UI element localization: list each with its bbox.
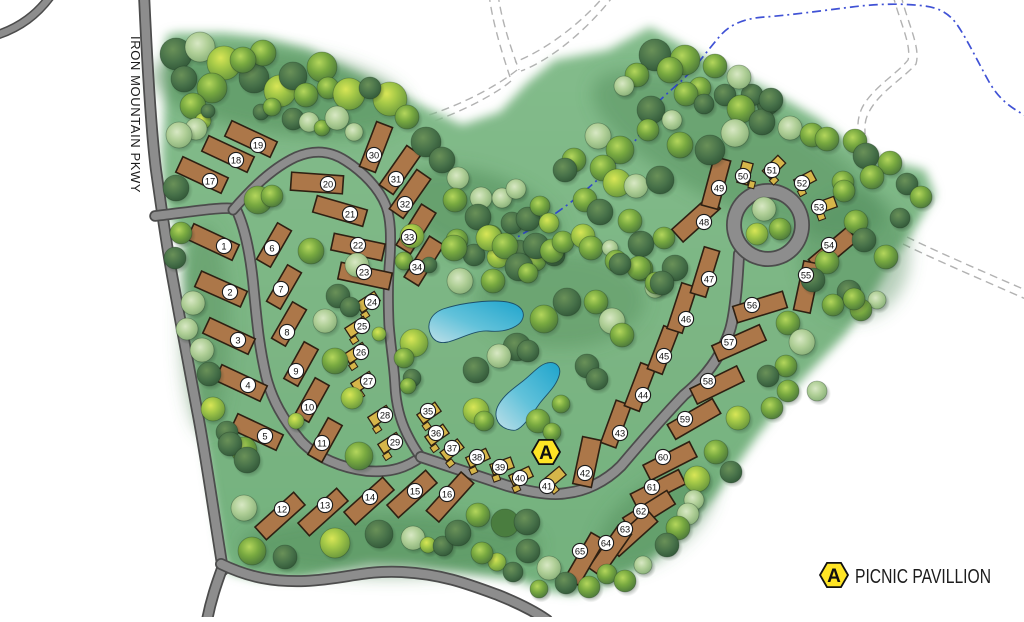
svg-text:43: 43: [615, 428, 625, 438]
svg-text:55: 55: [801, 270, 811, 280]
svg-text:9: 9: [293, 366, 298, 376]
svg-text:16: 16: [442, 489, 452, 499]
svg-text:12: 12: [277, 504, 287, 514]
svg-text:62: 62: [636, 506, 646, 516]
svg-text:14: 14: [365, 492, 375, 502]
svg-text:60: 60: [658, 452, 668, 462]
svg-text:13: 13: [320, 500, 330, 510]
svg-text:31: 31: [391, 174, 401, 184]
svg-text:48: 48: [699, 217, 709, 227]
svg-text:39: 39: [495, 462, 505, 472]
svg-text:27: 27: [363, 376, 373, 386]
svg-text:35: 35: [423, 406, 433, 416]
svg-text:10: 10: [304, 402, 314, 412]
svg-text:29: 29: [390, 437, 400, 447]
svg-text:A: A: [539, 443, 553, 464]
svg-text:56: 56: [747, 300, 757, 310]
svg-text:33: 33: [404, 232, 414, 242]
svg-text:6: 6: [269, 243, 274, 253]
svg-text:63: 63: [620, 524, 630, 534]
svg-text:52: 52: [797, 178, 807, 188]
svg-text:5: 5: [262, 431, 267, 441]
svg-text:3: 3: [235, 335, 240, 345]
svg-text:4: 4: [245, 380, 250, 390]
svg-text:28: 28: [380, 410, 390, 420]
svg-text:37: 37: [447, 443, 457, 453]
svg-text:8: 8: [284, 327, 289, 337]
svg-text:46: 46: [681, 314, 691, 324]
svg-text:11: 11: [317, 438, 327, 448]
svg-text:19: 19: [253, 140, 263, 150]
svg-text:PICNIC PAVILLION: PICNIC PAVILLION: [855, 565, 991, 588]
svg-text:26: 26: [356, 347, 366, 357]
svg-text:45: 45: [659, 351, 669, 361]
svg-text:41: 41: [542, 481, 552, 491]
svg-text:61: 61: [647, 482, 657, 492]
svg-text:30: 30: [369, 150, 379, 160]
svg-text:57: 57: [724, 337, 734, 347]
svg-text:38: 38: [472, 452, 482, 462]
svg-text:25: 25: [357, 321, 367, 331]
svg-text:40: 40: [515, 473, 525, 483]
svg-text:42: 42: [580, 468, 590, 478]
svg-text:21: 21: [345, 209, 355, 219]
svg-text:53: 53: [814, 202, 824, 212]
svg-text:65: 65: [575, 546, 585, 556]
svg-text:23: 23: [359, 267, 369, 277]
svg-text:64: 64: [601, 538, 611, 548]
svg-text:7: 7: [278, 284, 283, 294]
svg-text:50: 50: [738, 171, 748, 181]
svg-text:34: 34: [412, 262, 422, 272]
svg-text:IRON MOUNTAIN PKWY: IRON MOUNTAIN PKWY: [128, 36, 143, 193]
svg-text:A: A: [827, 566, 841, 587]
svg-text:47: 47: [704, 274, 714, 284]
svg-text:20: 20: [323, 179, 333, 189]
svg-text:54: 54: [824, 240, 834, 250]
svg-text:18: 18: [231, 155, 241, 165]
svg-text:15: 15: [410, 486, 420, 496]
svg-text:2: 2: [227, 287, 232, 297]
svg-text:17: 17: [205, 176, 215, 186]
svg-text:49: 49: [714, 183, 724, 193]
svg-text:22: 22: [353, 240, 363, 250]
svg-text:36: 36: [431, 428, 441, 438]
svg-text:24: 24: [367, 297, 377, 307]
svg-text:1: 1: [221, 241, 226, 251]
svg-text:51: 51: [767, 165, 777, 175]
svg-text:59: 59: [680, 414, 690, 424]
svg-text:58: 58: [703, 376, 713, 386]
svg-text:32: 32: [400, 199, 410, 209]
svg-text:44: 44: [638, 390, 648, 400]
